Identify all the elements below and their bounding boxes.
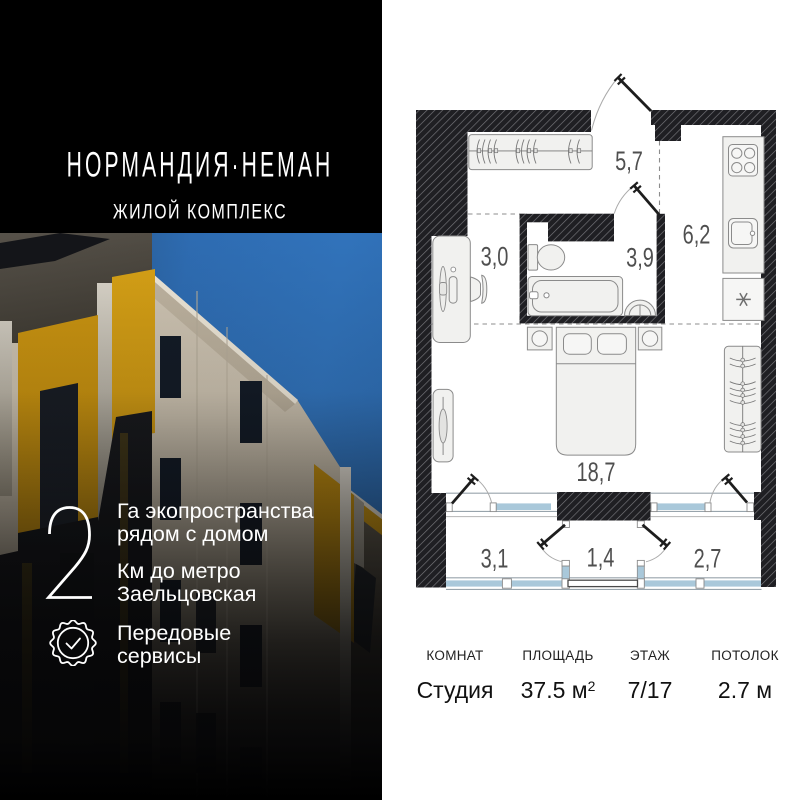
svg-text:18,7: 18,7 [577, 457, 616, 488]
svg-text:3,9: 3,9 [626, 243, 654, 274]
svg-text:5,7: 5,7 [615, 146, 643, 177]
svg-text:6,2: 6,2 [683, 220, 711, 251]
svg-text:1,4: 1,4 [587, 543, 615, 574]
svg-text:2,7: 2,7 [694, 544, 722, 575]
svg-text:3,1: 3,1 [481, 544, 509, 575]
svg-text:3,0: 3,0 [481, 242, 509, 273]
